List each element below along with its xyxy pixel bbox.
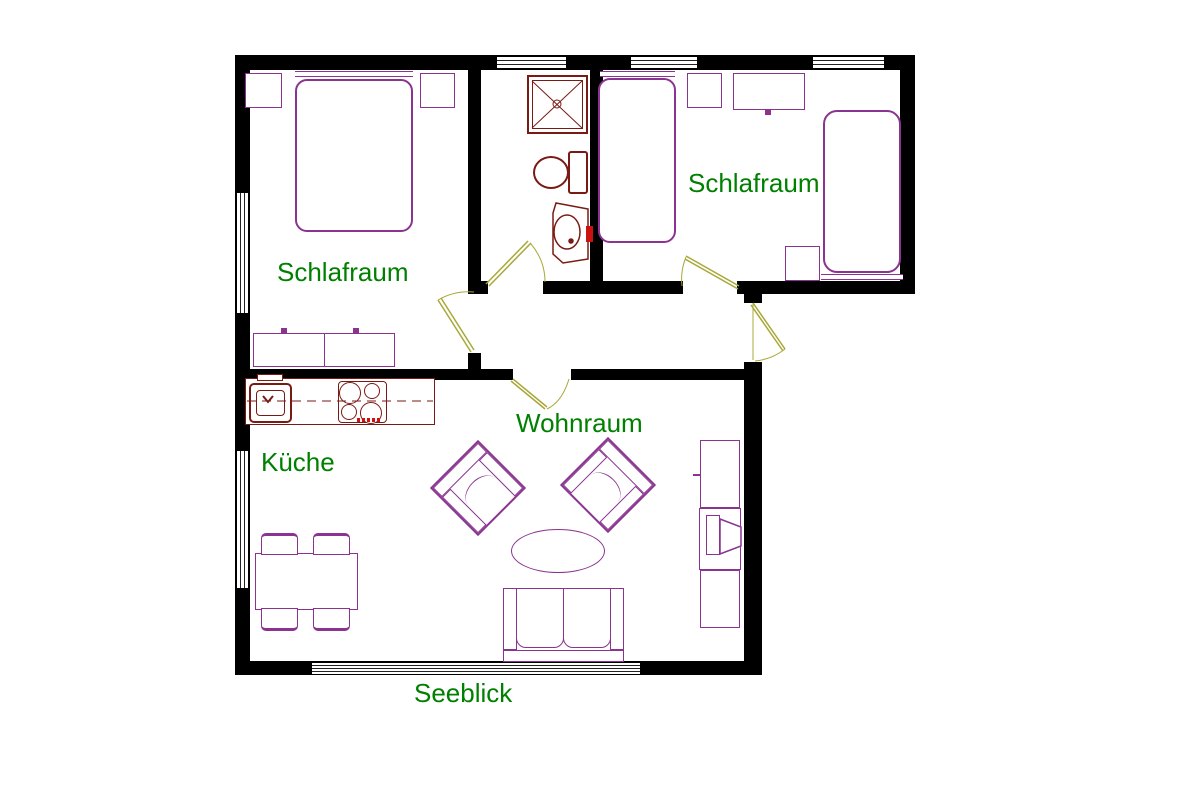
nightstand — [245, 73, 282, 108]
desk — [733, 73, 805, 110]
room-label-seeblick: Seeblick — [414, 680, 512, 707]
shower-tray-inner — [532, 80, 583, 129]
stove-burner — [341, 404, 357, 420]
sink-drainer — [257, 374, 283, 381]
room-label-bedroom-right: Schlafraum — [688, 170, 820, 197]
wall-mid-right — [737, 281, 915, 294]
living-room-door — [511, 379, 569, 409]
door-arc — [755, 349, 785, 361]
window-line — [497, 64, 566, 65]
room-label-bedroom-left: Schlafraum — [277, 259, 409, 286]
room-label-kitchen: Küche — [261, 449, 335, 476]
window-line — [312, 668, 640, 669]
armchair — [560, 437, 656, 533]
toilet-tank — [568, 151, 588, 194]
window-top-bedroom-right-2 — [813, 57, 884, 68]
window-left-kitchen — [237, 451, 248, 588]
single-bed — [598, 78, 676, 243]
sideboard-knob — [281, 328, 287, 333]
toilet-bowl — [533, 156, 569, 189]
window-line — [312, 665, 640, 666]
sofa — [503, 588, 624, 662]
sofa-cushion — [563, 588, 611, 648]
wall-living-right — [744, 362, 762, 675]
wall-right-upper — [900, 55, 915, 294]
bathroom-door — [486, 241, 545, 286]
window-line — [631, 64, 697, 65]
sideboard-knob — [353, 328, 359, 333]
window-line — [813, 60, 884, 61]
washbasin-bowl — [554, 215, 580, 249]
coffee-table — [511, 529, 605, 573]
single-bed — [823, 110, 901, 273]
dining-chair — [261, 533, 298, 555]
door-leaf — [511, 379, 547, 409]
entrance-door — [751, 303, 785, 361]
window-seeblick — [312, 663, 640, 674]
tv-cabinet-top — [700, 440, 740, 508]
window-top-bath — [497, 57, 566, 68]
window-line — [497, 60, 566, 61]
window-line — [240, 193, 241, 313]
door-leaf — [486, 241, 531, 286]
washbasin-drain — [569, 239, 573, 243]
washbasin — [553, 203, 593, 263]
floorplan-canvas: Schlafraum Schlafraum Küche — [0, 0, 1200, 800]
armchair — [430, 440, 526, 536]
kitchen-sink-basin — [256, 390, 285, 416]
bedroom-left-door — [438, 292, 474, 352]
window-top-bedroom-right-1 — [631, 57, 697, 68]
window-line — [244, 451, 245, 588]
window-line — [244, 193, 245, 313]
bed-headboard — [600, 71, 675, 77]
bed-headboard — [295, 71, 413, 77]
double-bed — [295, 79, 413, 232]
sofa-armrest — [503, 588, 517, 650]
tv-cabinet-bottom — [700, 570, 740, 628]
washbasin-vanity — [553, 203, 588, 263]
sofa-armrest — [610, 588, 624, 650]
sideboard-divider — [324, 334, 325, 366]
sideboard — [253, 333, 395, 367]
wall-mid-stub-left — [468, 281, 488, 294]
door-leaf — [751, 303, 785, 351]
window-line — [631, 60, 697, 61]
bedroom-right-door — [682, 256, 739, 289]
window-line — [312, 671, 640, 672]
wall-hall-right-stub — [744, 281, 762, 303]
sofa-back — [503, 650, 624, 662]
door-leaf — [438, 298, 474, 352]
window-left-bedroom — [237, 193, 248, 313]
nightstand — [420, 73, 455, 108]
window-line — [240, 451, 241, 588]
door-arc — [531, 244, 545, 282]
bed-footline — [821, 274, 903, 280]
dining-chair — [313, 533, 350, 555]
wall-mid-center — [543, 281, 683, 294]
nightstand — [687, 73, 722, 108]
stove-burner — [360, 402, 382, 424]
nightstand — [785, 246, 820, 281]
door-arc — [547, 379, 569, 409]
stove-burner — [339, 382, 361, 404]
wall-bath-left-upper — [468, 55, 481, 294]
sofa-cushion — [516, 588, 564, 648]
tv-back — [706, 515, 720, 555]
dining-chair — [313, 608, 350, 631]
stove-burner — [364, 383, 380, 399]
dining-chair — [261, 608, 298, 631]
dining-table — [255, 553, 358, 610]
door-leaf — [685, 256, 739, 289]
desk-knob — [765, 110, 771, 115]
room-label-living: Wohnraum — [516, 410, 643, 437]
wall-living-top — [571, 369, 762, 380]
window-line — [813, 64, 884, 65]
